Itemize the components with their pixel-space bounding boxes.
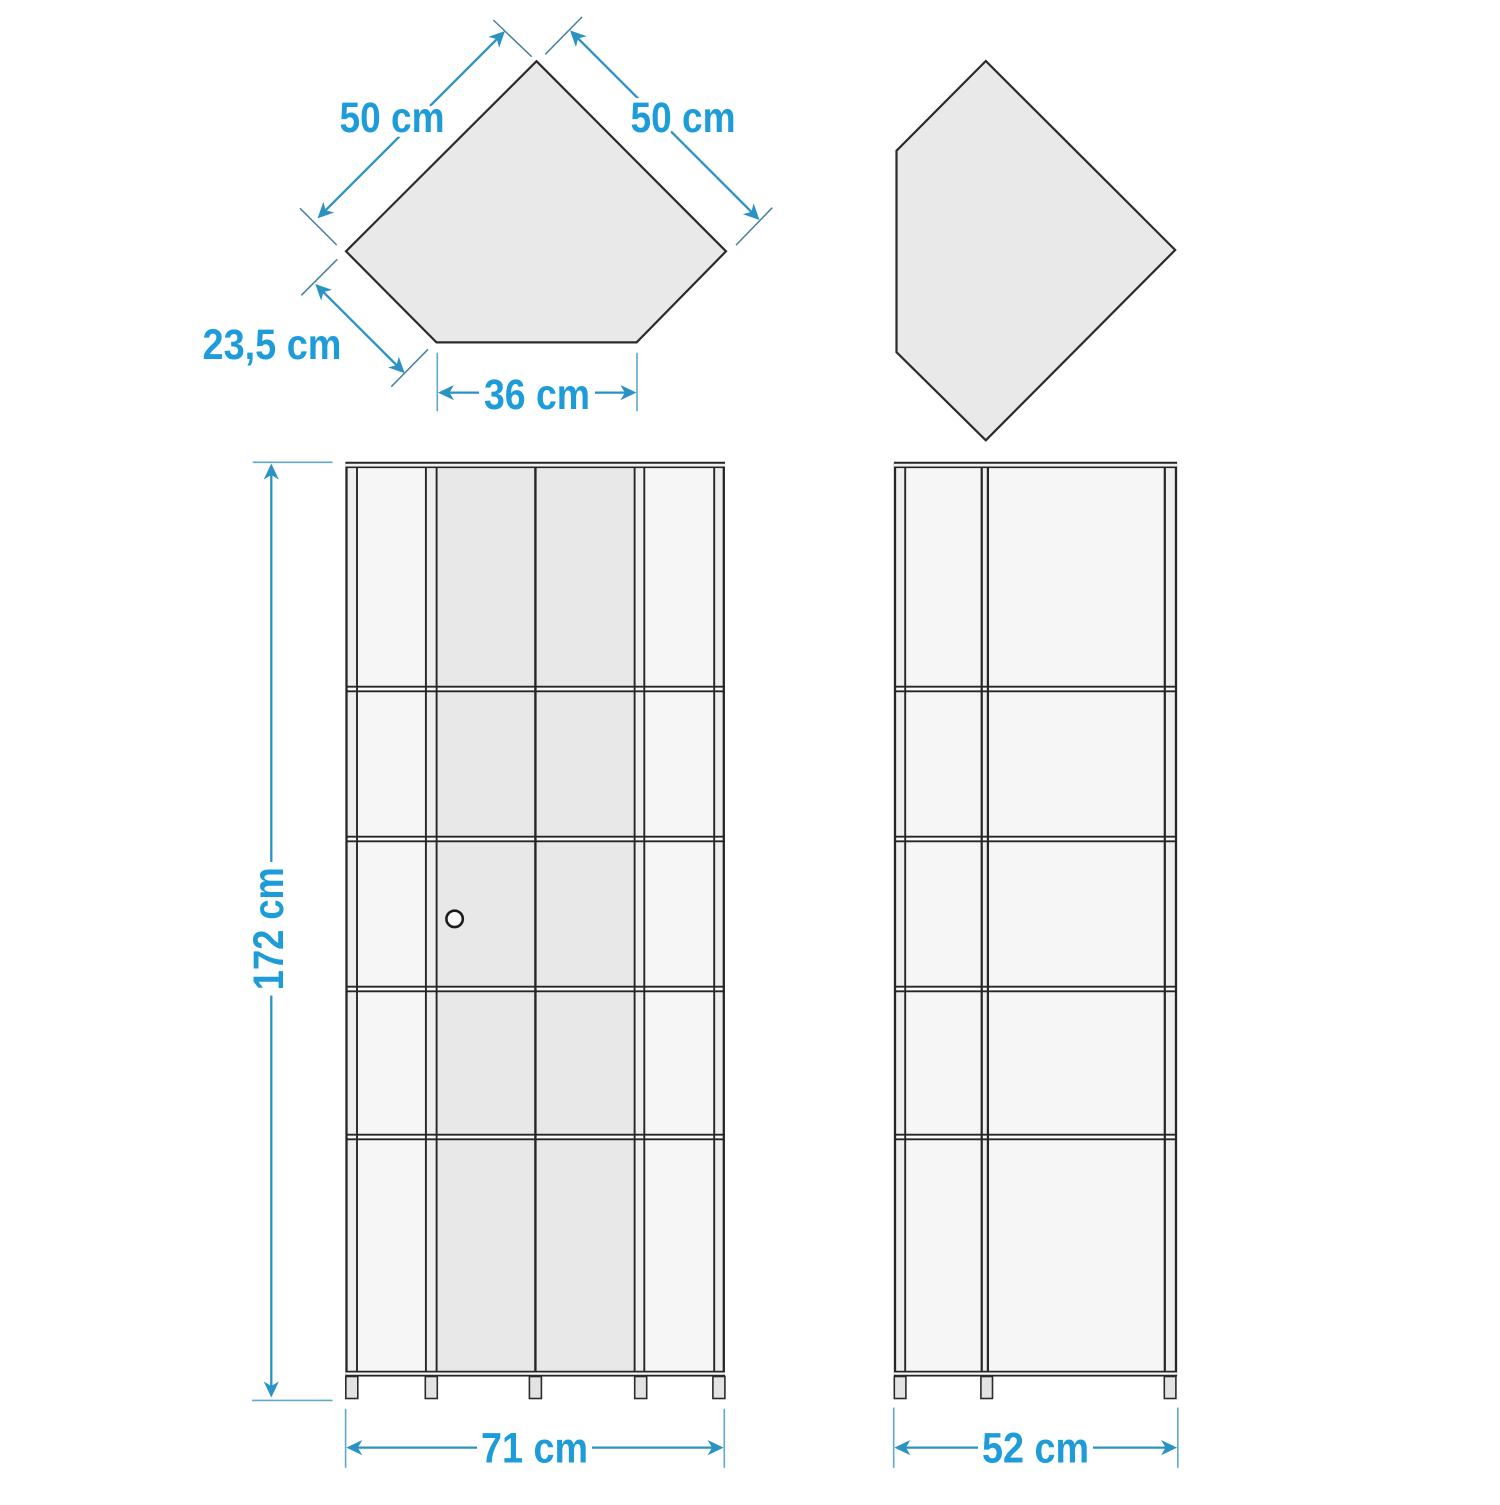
svg-text:52 cm: 52 cm (982, 1424, 1089, 1472)
svg-text:50 cm: 50 cm (340, 94, 445, 142)
svg-text:172 cm: 172 cm (245, 867, 293, 990)
svg-text:36 cm: 36 cm (484, 371, 590, 419)
svg-text:50 cm: 50 cm (631, 94, 736, 142)
svg-text:23,5 cm: 23,5 cm (203, 321, 342, 369)
svg-text:71 cm: 71 cm (481, 1424, 588, 1472)
